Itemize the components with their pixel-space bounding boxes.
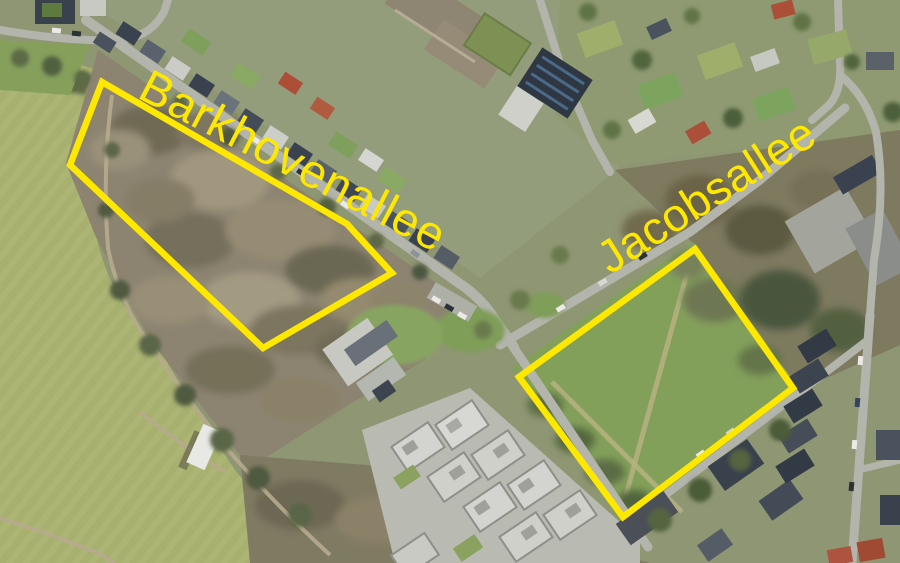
aerial-photo: Barkhovenallee Jacobsallee: [0, 0, 900, 563]
aerial-image: Barkhovenallee Jacobsallee: [0, 0, 900, 563]
aerial-photo-backdrop: [0, 0, 900, 563]
